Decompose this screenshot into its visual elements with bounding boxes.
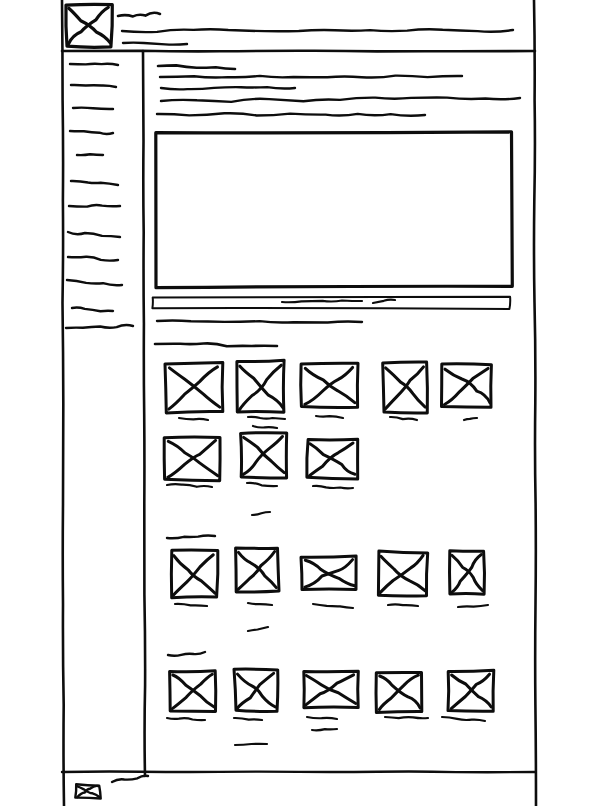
gallery-heading-scribble <box>167 536 215 539</box>
page-left-border <box>62 0 64 806</box>
footer-logo-placeholder[interactable] <box>75 784 100 798</box>
thumbnail-r1-c2[interactable] <box>237 360 284 412</box>
header-divider <box>62 51 535 52</box>
thumbnail-caption-scribble <box>464 418 477 420</box>
brand-name-scribble <box>118 13 160 17</box>
sidebar-item-scribble-10[interactable] <box>67 280 122 285</box>
sidebar-item-scribble-05[interactable] <box>77 154 103 155</box>
thumbnail-r3-c3[interactable] <box>301 556 356 590</box>
thumbnail-r3-c2[interactable] <box>236 548 279 592</box>
sidebar-item-scribble-12[interactable] <box>66 325 133 328</box>
thumbnail-caption-scribble <box>316 416 343 418</box>
thumbnail-r4-c4[interactable] <box>376 672 422 712</box>
thumbnail-r1-c3[interactable] <box>301 363 358 407</box>
page-right-border <box>534 0 536 806</box>
footer-text-scribble <box>112 776 148 782</box>
header-tagline-scribble <box>122 29 513 32</box>
article-line-scribble-3 <box>161 98 520 102</box>
article-title-scribble <box>158 65 235 69</box>
thumbnail-r3-c1[interactable] <box>171 550 218 598</box>
sidebar-item-scribble-04[interactable] <box>70 131 113 134</box>
thumbnail-r4-c2[interactable] <box>234 669 278 711</box>
thumbnail-caption-scribble <box>442 717 485 721</box>
wireframe-sketch <box>0 0 600 806</box>
thumbnail-r3-c4[interactable] <box>378 551 427 596</box>
gallery-heading-scribble <box>168 652 205 656</box>
thumbnail-caption-scribble <box>313 604 353 608</box>
thumbnail-caption-scribble <box>179 418 208 420</box>
thumbnail-r1-c4[interactable] <box>383 362 428 413</box>
sidebar-item-scribble-08[interactable] <box>68 232 120 237</box>
thumbnail-r4-c1[interactable] <box>170 671 216 712</box>
thumbnail-r1-c1[interactable] <box>165 363 223 414</box>
thumbnail-caption-scribble-2 <box>253 426 277 428</box>
thumbnail-caption-scribble <box>388 604 418 606</box>
article-line-scribble-1 <box>160 76 462 78</box>
thumbnail-caption-scribble <box>248 603 272 605</box>
sidebar-item-scribble-09[interactable] <box>68 257 118 261</box>
footer-divider <box>62 771 535 772</box>
thumbnail-caption-scribble <box>175 604 207 606</box>
section-heading-scribble <box>155 343 277 346</box>
sidebar-item-scribble-01[interactable] <box>70 64 118 65</box>
thumbnail-caption-scribble <box>390 417 417 420</box>
media-bar-label-scribble-2 <box>373 300 395 303</box>
thumbnail-r1-c5[interactable] <box>442 364 492 408</box>
thumbnail-r4-c5[interactable] <box>448 670 494 711</box>
article-line-scribble-2 <box>161 87 295 89</box>
thumbnail-r3-c5[interactable] <box>450 551 485 594</box>
thumbnail-caption-scribble <box>234 718 262 720</box>
thumbnail-caption-scribble-2 <box>235 744 267 745</box>
media-bar[interactable] <box>152 297 510 309</box>
wireframe-page <box>0 0 600 806</box>
logo-image-placeholder[interactable] <box>66 4 112 47</box>
thumbnail-caption-scribble <box>247 483 277 486</box>
thumbnail-r2-c1[interactable] <box>164 437 220 481</box>
thumbnail-caption-scribble <box>458 605 488 607</box>
thumbnail-caption-scribble <box>248 417 285 419</box>
caption-line-scribble <box>157 321 362 323</box>
thumbnail-caption-scribble <box>313 486 353 489</box>
thumbnail-caption-scribble-2 <box>312 729 337 730</box>
sidebar-item-scribble-06[interactable] <box>71 181 118 185</box>
thumbnail-r2-c3[interactable] <box>307 439 358 479</box>
sidebar-item-scribble-07[interactable] <box>69 205 120 207</box>
sidebar-item-scribble-03[interactable] <box>73 108 113 109</box>
article-line-scribble-4 <box>157 113 425 116</box>
thumbnail-caption-scribble <box>307 717 337 719</box>
thumbnail-caption-scribble <box>167 484 212 487</box>
thumbnail-r2-c2[interactable] <box>241 433 287 478</box>
sidebar-divider <box>143 51 145 776</box>
thumbnail-caption-scribble-2 <box>248 627 268 631</box>
header-subtext-scribble <box>123 43 187 45</box>
sidebar-item-scribble-02[interactable] <box>71 85 116 87</box>
thumbnail-caption-scribble-2 <box>252 512 270 515</box>
hero-image-placeholder <box>156 132 513 288</box>
thumbnail-caption-scribble <box>167 718 205 720</box>
thumbnail-r4-c3[interactable] <box>304 671 359 708</box>
media-bar-label-scribble <box>282 301 362 303</box>
thumbnail-caption-scribble <box>385 717 428 718</box>
sidebar-item-scribble-11[interactable] <box>72 308 113 312</box>
